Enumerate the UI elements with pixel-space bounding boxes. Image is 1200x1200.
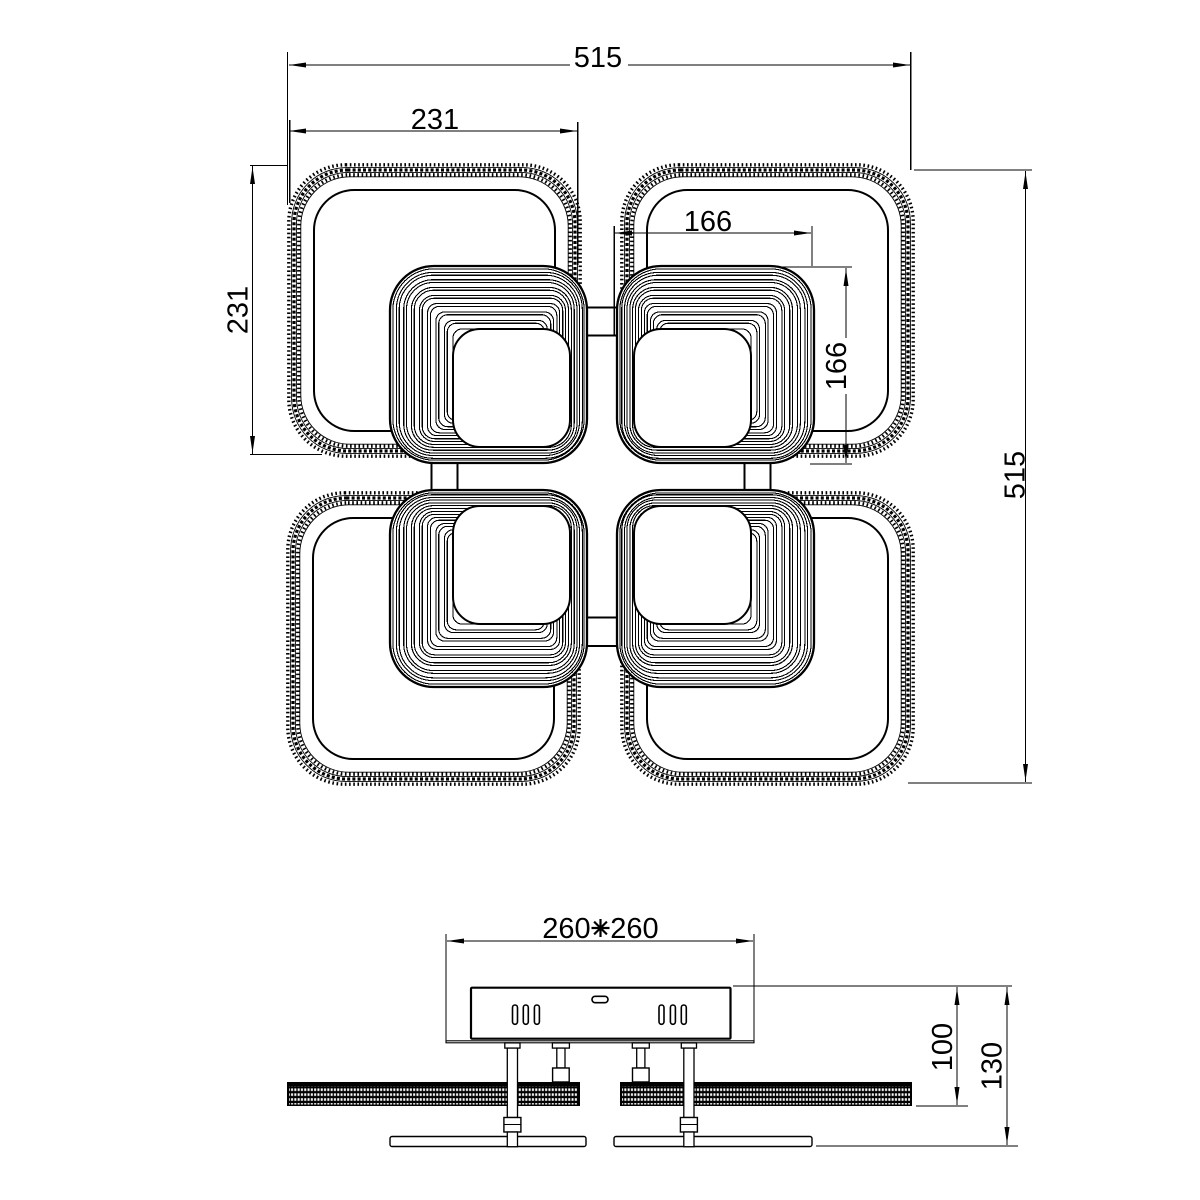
svg-text:260: 260 <box>542 913 590 945</box>
svg-text:130: 130 <box>977 1042 1009 1090</box>
svg-text:166: 166 <box>821 342 853 390</box>
svg-text:231: 231 <box>411 104 459 136</box>
svg-text:260: 260 <box>610 913 658 945</box>
svg-text:515: 515 <box>1000 451 1032 499</box>
svg-text:515: 515 <box>574 42 622 74</box>
svg-text:100: 100 <box>927 1023 959 1071</box>
svg-text:166: 166 <box>684 206 732 238</box>
svg-text:231: 231 <box>223 286 255 334</box>
